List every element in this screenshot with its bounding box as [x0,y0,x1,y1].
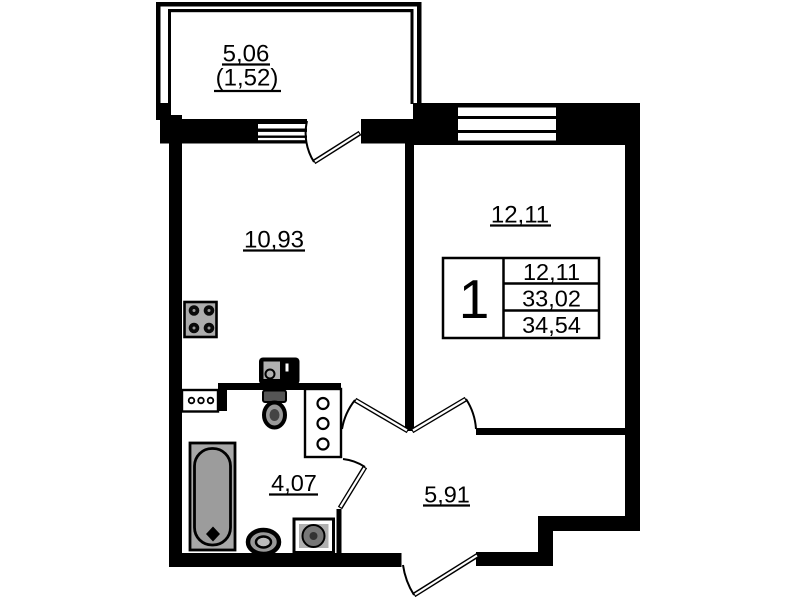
svg-text:33,02: 33,02 [522,286,581,312]
svg-text:12,11: 12,11 [523,259,580,285]
svg-text:(1,52): (1,52) [216,65,279,92]
svg-text:34,54: 34,54 [522,312,581,338]
svg-text:1: 1 [459,268,490,330]
svg-text:5,91: 5,91 [424,482,470,508]
svg-text:4,07: 4,07 [271,470,317,496]
